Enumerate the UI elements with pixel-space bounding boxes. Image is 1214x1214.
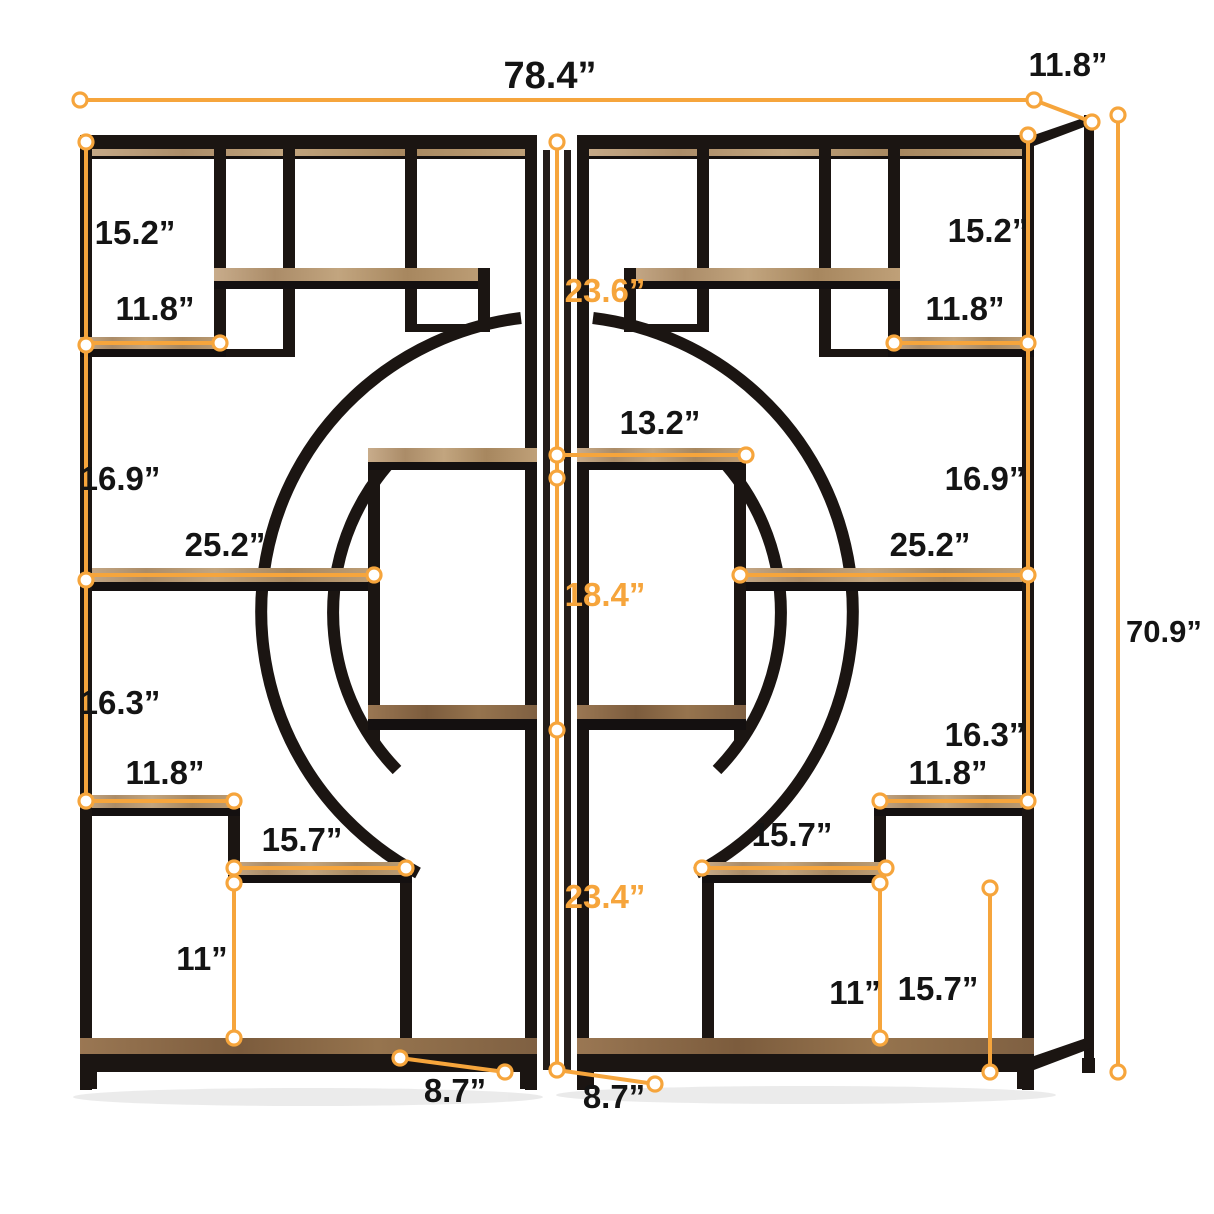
left-unit-outer-arc <box>261 318 521 873</box>
dim-label-right-step-section: 11” <box>829 974 880 1011</box>
dim-label-left-step-shelf: 15.7” <box>262 821 343 858</box>
dim-label-overall-width: 78.4” <box>504 55 597 97</box>
right-unit-depth-face <box>1034 115 1095 1073</box>
dim-label-center-shelf: 13.2” <box>620 404 701 441</box>
dim-label-center-lower-opening: 23.4” <box>565 878 646 915</box>
dim-label-right-lower-mid-section: 16.3” <box>945 716 1026 753</box>
dim-label-right-top-shelf: 11.8” <box>926 290 1005 327</box>
left-unit-back-post <box>543 150 550 1070</box>
dim-label-right-upper-mid-section: 16.9” <box>945 460 1026 497</box>
product-dimension-diagram: 78.4” 11.8” 70.9” 15.2” 11.8” 16.9” 25.2… <box>0 0 1214 1214</box>
left-unit-foot <box>82 1072 97 1089</box>
dim-label-left-top-shelf: 11.8” <box>116 290 195 327</box>
left-bottom-shelf <box>80 1038 537 1054</box>
left-tower-post <box>368 448 380 742</box>
left-inner-post <box>525 135 537 1090</box>
left-tower-bottom-shelf <box>368 705 537 719</box>
dim-label-left-step-section: 11” <box>176 940 227 977</box>
dim-label-left-lower-shelf: 11.8” <box>126 754 205 791</box>
dim-label-center-middle-opening: 18.4” <box>565 576 646 613</box>
dim-label-left-lower-mid-section: 16.3” <box>80 684 161 721</box>
right-tower-bottom-shelf <box>577 705 746 719</box>
dim-label-right-lower-shelf: 11.8” <box>909 754 988 791</box>
dim-label-right-bottom-section: 15.7” <box>898 970 979 1007</box>
dim-label-overall-height: 70.9” <box>1126 614 1202 649</box>
floor-shadow <box>73 1086 1056 1106</box>
left-unit-foot <box>520 1072 535 1089</box>
diagram-canvas: 78.4” 11.8” 70.9” 15.2” 11.8” 16.9” 25.2… <box>0 0 1214 1214</box>
left-shelf-unit <box>80 135 550 1090</box>
dim-label-left-upper-mid-section: 16.9” <box>80 460 161 497</box>
dim-label-left-base-depth: 8.7” <box>424 1072 486 1109</box>
left-tower-top-shelf <box>368 448 537 462</box>
dim-label-right-base-depth: 8.7” <box>583 1078 645 1115</box>
right-bottom-shelf <box>577 1038 1034 1054</box>
left-upper-shelf <box>214 268 490 281</box>
right-unit-foot <box>1017 1072 1032 1089</box>
dim-label-center-upper-opening: 23.6” <box>565 272 646 309</box>
left-top-beam <box>80 135 537 149</box>
right-tower-post <box>734 448 746 742</box>
dim-label-right-step-shelf: 15.7” <box>752 816 833 853</box>
dim-label-right-middle-shelf: 25.2” <box>890 526 971 563</box>
dim-label-overall-depth: 11.8” <box>1029 46 1108 83</box>
right-upper-shelf <box>624 268 900 281</box>
dim-label-left-top-section: 15.2” <box>95 214 176 251</box>
overall-depth-line <box>1034 100 1092 122</box>
dim-label-right-top-section: 15.2” <box>948 212 1029 249</box>
dim-label-left-middle-shelf: 25.2” <box>185 526 266 563</box>
right-top-beam <box>577 135 1034 149</box>
